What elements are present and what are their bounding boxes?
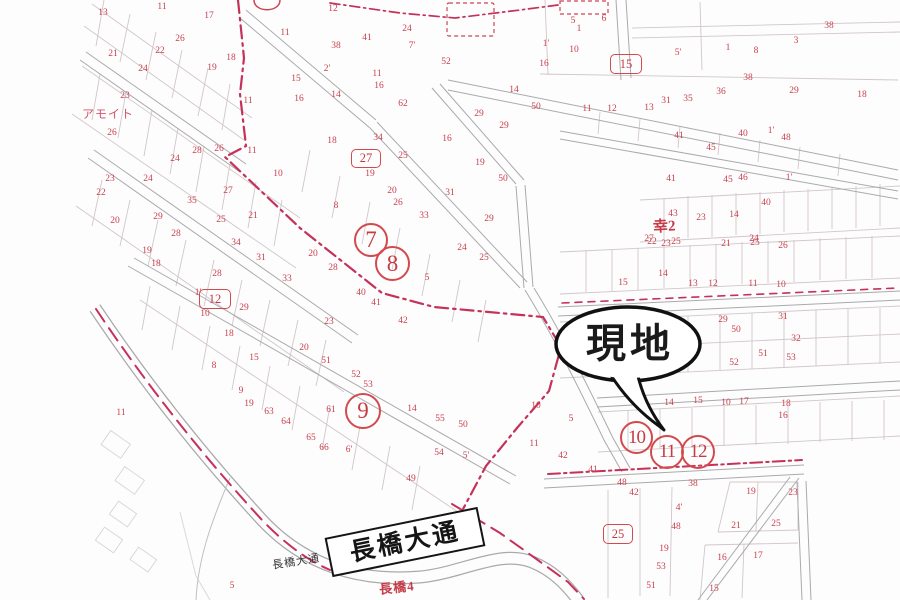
parcel-number: 2' bbox=[324, 64, 330, 74]
parcel-number: 10 bbox=[721, 398, 731, 408]
parcel-number: 26 bbox=[778, 241, 788, 251]
parcel-number: 1' bbox=[543, 39, 549, 49]
parcel-number: 62 bbox=[398, 99, 408, 109]
parcel-number: 24 bbox=[138, 64, 148, 74]
parcel-number: 10 bbox=[776, 280, 786, 290]
parcel-number: 11 bbox=[529, 439, 538, 449]
parcel-number: 38 bbox=[824, 21, 834, 31]
parcel-number: 21 bbox=[731, 521, 741, 531]
parcel-number: 14 bbox=[331, 90, 341, 100]
parcel-number: 35 bbox=[683, 94, 693, 104]
parcel-number: 48 bbox=[617, 478, 627, 488]
parcel-number: 5' bbox=[675, 48, 681, 58]
parcel-number: 31 bbox=[256, 253, 266, 263]
parcel-number: 19 bbox=[244, 399, 254, 409]
parcel-number: 34 bbox=[373, 133, 383, 143]
parcel-number: 24 bbox=[749, 234, 759, 244]
parcel-number: 16 bbox=[778, 411, 788, 421]
parcel-number: 26 bbox=[214, 144, 224, 154]
parcel-number: 18 bbox=[857, 90, 867, 100]
parcel-number: 8 bbox=[212, 361, 217, 371]
parcel-number: 32 bbox=[791, 334, 801, 344]
parcel-number: 50 bbox=[731, 325, 741, 335]
parcel-number: 38 bbox=[331, 41, 341, 51]
parcel-number: 23 bbox=[105, 174, 115, 184]
parcel-number: 11 bbox=[748, 279, 757, 289]
parcel-number: 7' bbox=[409, 41, 415, 51]
parcel-number: 10 bbox=[531, 401, 541, 411]
parcel-number: 1 bbox=[577, 24, 582, 34]
parcel-number: 23 bbox=[788, 488, 798, 498]
parcel-number: 45 bbox=[706, 143, 716, 153]
circle-marker-8: 8 bbox=[375, 246, 410, 281]
parcel-number: 11 bbox=[372, 69, 381, 79]
parcel-number: 26 bbox=[393, 198, 403, 208]
parcel-number: 15 bbox=[249, 353, 259, 363]
parcel-number: 54 bbox=[434, 448, 444, 458]
parcel-number: 16 bbox=[442, 134, 452, 144]
parcel-numbers-layer: 1311172621222419182311262428262324223527… bbox=[0, 0, 900, 600]
parcel-number: 19 bbox=[746, 487, 756, 497]
parcel-number: 11 bbox=[243, 96, 252, 106]
parcel-number: 21 bbox=[248, 211, 258, 221]
circle-marker-12: 12 bbox=[681, 435, 715, 469]
parcel-number: 5' bbox=[463, 451, 469, 461]
parcel-number: 16 bbox=[717, 553, 727, 563]
parcel-number: 20 bbox=[299, 343, 309, 353]
parcel-number: 10 bbox=[273, 169, 283, 179]
parcel-number: 52 bbox=[729, 358, 739, 368]
parcel-number: 17 bbox=[753, 551, 763, 561]
parcel-number: 5 bbox=[569, 414, 574, 424]
parcel-number: 63 bbox=[264, 407, 274, 417]
parcel-number: 1 bbox=[726, 43, 731, 53]
parcel-number: 21 bbox=[721, 239, 731, 249]
parcel-number: 53 bbox=[656, 562, 666, 572]
parcel-number: 21 bbox=[108, 49, 118, 59]
parcel-number: 64 bbox=[281, 417, 291, 427]
parcel-number: 1' bbox=[786, 173, 792, 183]
parcel-number: 11 bbox=[116, 408, 125, 418]
district-label-sachi2: 幸2 bbox=[652, 214, 676, 236]
parcel-number: 66 bbox=[319, 443, 329, 453]
parcel-number: 61 bbox=[326, 405, 336, 415]
parcel-number: 29 bbox=[789, 86, 799, 96]
parcel-number: 18 bbox=[327, 136, 337, 146]
parcel-number: 25 bbox=[216, 215, 226, 225]
parcel-number: 9 bbox=[239, 386, 244, 396]
parcel-number: 14 bbox=[664, 398, 674, 408]
parcel-number: 11 bbox=[280, 28, 289, 38]
parcel-number: 29 bbox=[718, 315, 728, 325]
parcel-number: 23 bbox=[120, 91, 130, 101]
parcel-number: 41 bbox=[362, 33, 372, 43]
box-marker-27: 27 bbox=[351, 149, 381, 168]
parcel-number: 40 bbox=[738, 129, 748, 139]
parcel-number: 51 bbox=[646, 581, 656, 591]
parcel-number: 19 bbox=[475, 158, 485, 168]
parcel-number: 8 bbox=[334, 201, 339, 211]
parcel-number: 8 bbox=[754, 46, 759, 56]
parcel-number: 20 bbox=[308, 249, 318, 259]
parcel-number: 48 bbox=[781, 133, 791, 143]
parcel-number: 20 bbox=[387, 186, 397, 196]
parcel-number: 17 bbox=[739, 397, 749, 407]
parcel-number: 65 bbox=[306, 433, 316, 443]
parcel-number: 31 bbox=[445, 188, 455, 198]
parcel-number: 42 bbox=[629, 488, 639, 498]
parcel-number: 10 bbox=[200, 309, 210, 319]
parcel-number: 24 bbox=[143, 174, 153, 184]
parcel-number: 19 bbox=[659, 544, 669, 554]
parcel-number: 5 bbox=[571, 16, 576, 26]
parcel-number: 15 bbox=[291, 74, 301, 84]
parcel-number: 16 bbox=[539, 59, 549, 69]
parcel-number: 35 bbox=[187, 196, 197, 206]
parcel-number: 41 bbox=[674, 131, 684, 141]
parcel-number: 33 bbox=[419, 211, 429, 221]
parcel-number: 55 bbox=[435, 414, 445, 424]
circle-marker-10: 10 bbox=[620, 421, 653, 454]
parcel-number: 4' bbox=[676, 503, 682, 513]
parcel-number: 17 bbox=[204, 11, 214, 21]
parcel-number: 14 bbox=[509, 85, 519, 95]
parcel-number: 28 bbox=[192, 146, 202, 156]
parcel-number: 40 bbox=[356, 288, 366, 298]
parcel-number: 22 bbox=[96, 188, 106, 198]
parcel-number: 15 bbox=[693, 396, 703, 406]
box-marker-25: 25 bbox=[603, 524, 633, 544]
parcel-number: 24 bbox=[170, 154, 180, 164]
box-marker-15: 15 bbox=[610, 54, 642, 74]
parcel-number: 46 bbox=[738, 173, 748, 183]
parcel-number: 41 bbox=[371, 298, 381, 308]
parcel-number: 15 bbox=[709, 584, 719, 594]
parcel-number: 12 bbox=[607, 104, 617, 114]
parcel-number: 13 bbox=[98, 8, 108, 18]
building-label-amoi: アモイト bbox=[82, 105, 134, 122]
parcel-number: 38 bbox=[688, 479, 698, 489]
parcel-number: 31 bbox=[778, 312, 788, 322]
parcel-number: 15 bbox=[618, 278, 628, 288]
parcel-number: 14 bbox=[729, 210, 739, 220]
parcel-number: 10 bbox=[569, 45, 579, 55]
parcel-number: 42 bbox=[398, 316, 408, 326]
parcel-number: 25 bbox=[398, 151, 408, 161]
parcel-number: 16 bbox=[374, 81, 384, 91]
parcel-number: 11 bbox=[247, 146, 256, 156]
parcel-number: 49 bbox=[406, 474, 416, 484]
district-label-nagahashi4: 長橋4 bbox=[378, 575, 415, 598]
parcel-number: 5 bbox=[425, 273, 430, 283]
parcel-number: 5 bbox=[230, 581, 235, 591]
parcel-number: 25 bbox=[479, 253, 489, 263]
parcel-number: 20 bbox=[110, 216, 120, 226]
parcel-number: 36 bbox=[716, 87, 726, 97]
parcel-number: 18 bbox=[151, 259, 161, 269]
parcel-number: 53 bbox=[363, 380, 373, 390]
parcel-number: 23 bbox=[696, 213, 706, 223]
parcel-number: 34 bbox=[231, 238, 241, 248]
box-marker-12: 12 bbox=[199, 289, 231, 309]
circle-marker-11: 11 bbox=[650, 435, 684, 469]
parcel-number: 29 bbox=[484, 214, 494, 224]
parcel-number: 33 bbox=[282, 274, 292, 284]
parcel-number: 26 bbox=[175, 34, 185, 44]
parcel-number: 24 bbox=[402, 24, 412, 34]
parcel-number: 45 bbox=[723, 175, 733, 185]
parcel-number: 50 bbox=[531, 102, 541, 112]
parcel-number: 19 bbox=[365, 169, 375, 179]
parcel-number: 27 bbox=[644, 234, 654, 244]
parcel-number: 19 bbox=[142, 246, 152, 256]
parcel-number: 29 bbox=[153, 212, 163, 222]
parcel-number: 28 bbox=[171, 229, 181, 239]
parcel-number: 40 bbox=[761, 198, 771, 208]
parcel-number: 18 bbox=[781, 399, 791, 409]
parcel-number: 28 bbox=[212, 269, 222, 279]
parcel-number: 3 bbox=[794, 36, 799, 46]
parcel-number: 19 bbox=[207, 63, 217, 73]
parcel-number: 16 bbox=[294, 94, 304, 104]
parcel-number: 41 bbox=[588, 465, 598, 475]
parcel-number: 28 bbox=[328, 263, 338, 273]
parcel-number: 25 bbox=[671, 237, 681, 247]
parcel-number: 38 bbox=[743, 73, 753, 83]
parcel-number: 22 bbox=[155, 46, 165, 56]
parcel-number: 53 bbox=[786, 353, 796, 363]
parcel-number: 51 bbox=[321, 356, 331, 366]
parcel-number: 29 bbox=[239, 303, 249, 313]
parcel-number: 11 bbox=[582, 104, 591, 114]
parcel-number: 27 bbox=[223, 186, 233, 196]
parcel-number: 52 bbox=[441, 57, 451, 67]
parcel-number: 50 bbox=[498, 174, 508, 184]
parcel-number: 11 bbox=[157, 2, 166, 12]
parcel-number: 12 bbox=[708, 279, 718, 289]
parcel-number: 18 bbox=[226, 53, 236, 63]
parcel-number: 23 bbox=[324, 317, 334, 327]
parcel-number: 6' bbox=[346, 445, 352, 455]
parcel-number: 50 bbox=[458, 420, 468, 430]
cadastral-map: 1311172621222419182311262428262324223527… bbox=[0, 0, 900, 600]
parcel-number: 24 bbox=[457, 243, 467, 253]
site-callout-label: 現地 bbox=[560, 322, 700, 366]
parcel-number: 18 bbox=[224, 329, 234, 339]
parcel-number: 42 bbox=[558, 451, 568, 461]
parcel-number: 29 bbox=[474, 109, 484, 119]
parcel-number: 23 bbox=[661, 239, 671, 249]
parcel-number: 6 bbox=[602, 14, 607, 24]
parcel-number: 13 bbox=[688, 279, 698, 289]
parcel-number: 29 bbox=[499, 121, 509, 131]
parcel-number: 52 bbox=[351, 370, 361, 380]
parcel-number: 31 bbox=[661, 96, 671, 106]
parcel-number: 1' bbox=[768, 126, 774, 136]
parcel-number: 51 bbox=[758, 349, 768, 359]
parcel-number: 14 bbox=[407, 404, 417, 414]
parcel-number: 25 bbox=[771, 519, 781, 529]
parcel-number: 41 bbox=[666, 174, 676, 184]
parcel-number: 14 bbox=[658, 269, 668, 279]
parcel-number: 12 bbox=[328, 4, 338, 14]
parcel-number: 13 bbox=[644, 103, 654, 113]
parcel-number: 48 bbox=[671, 522, 681, 532]
parcel-number: 26 bbox=[107, 128, 117, 138]
circle-marker-9: 9 bbox=[345, 393, 381, 429]
